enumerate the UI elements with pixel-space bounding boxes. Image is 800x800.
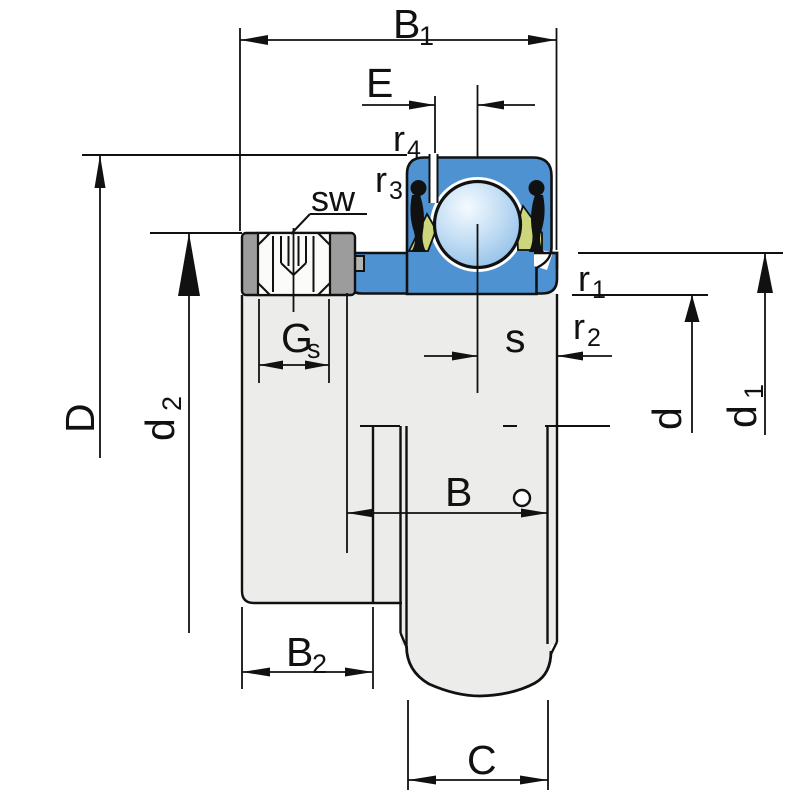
d1-arrow: [757, 253, 773, 293]
s-arrow-right: [557, 352, 583, 361]
c-arrow-left: [408, 776, 436, 785]
c-arrow-right: [520, 776, 548, 785]
label-D: D: [57, 403, 103, 433]
sw-leader-line: [291, 214, 310, 234]
label-r2-main: r: [573, 306, 585, 347]
label-d1-main: d: [719, 405, 765, 428]
shaft-upper-region: [373, 293, 557, 426]
drawing-canvas: B 1 E r 4 r 3 sw G s s r 1 r 2 B B 2 C D…: [0, 0, 800, 800]
D-arrow: [95, 155, 106, 188]
label-s: s: [505, 315, 526, 361]
label-d2-sub: 2: [157, 396, 187, 411]
label-gs-sub: s: [307, 334, 321, 364]
seal-lip-right: [529, 180, 545, 196]
seal-lip-left: [411, 180, 427, 196]
label-b2-sub: 2: [312, 649, 327, 679]
label-d: d: [644, 407, 690, 430]
label-b2-main: B: [286, 629, 313, 675]
d-arrow: [685, 295, 700, 322]
b1-arrow-right: [528, 35, 556, 45]
label-d2-main: d: [137, 418, 183, 441]
label-r1-main: r: [578, 258, 590, 299]
label-r3-sub: 3: [389, 177, 403, 205]
label-b: B: [445, 469, 472, 515]
bearing-dimension-drawing: B 1 E r 4 r 3 sw G s s r 1 r 2 B B 2 C D…: [0, 0, 800, 800]
label-c: C: [467, 737, 497, 783]
label-b1-sub: 1: [419, 21, 434, 51]
label-r4-sub: 4: [407, 136, 421, 164]
label-r3-main: r: [375, 159, 387, 200]
label-d1-sub: 1: [739, 384, 769, 399]
b2-arrow-right: [345, 668, 373, 677]
b1-arrow-left: [240, 35, 268, 45]
e-arrow-left: [409, 101, 435, 110]
label-r1-sub: 1: [592, 276, 606, 304]
label-r4-main: r: [393, 118, 405, 159]
label-r2-sub: 2: [587, 324, 601, 352]
label-sw: sw: [311, 178, 356, 219]
e-arrow-right: [478, 101, 504, 110]
label-b1-main: B: [393, 1, 420, 47]
label-e: E: [366, 60, 393, 106]
b-hole-marker: [514, 490, 530, 506]
b2-arrow-left: [242, 668, 270, 677]
d2-arrow: [178, 233, 200, 296]
